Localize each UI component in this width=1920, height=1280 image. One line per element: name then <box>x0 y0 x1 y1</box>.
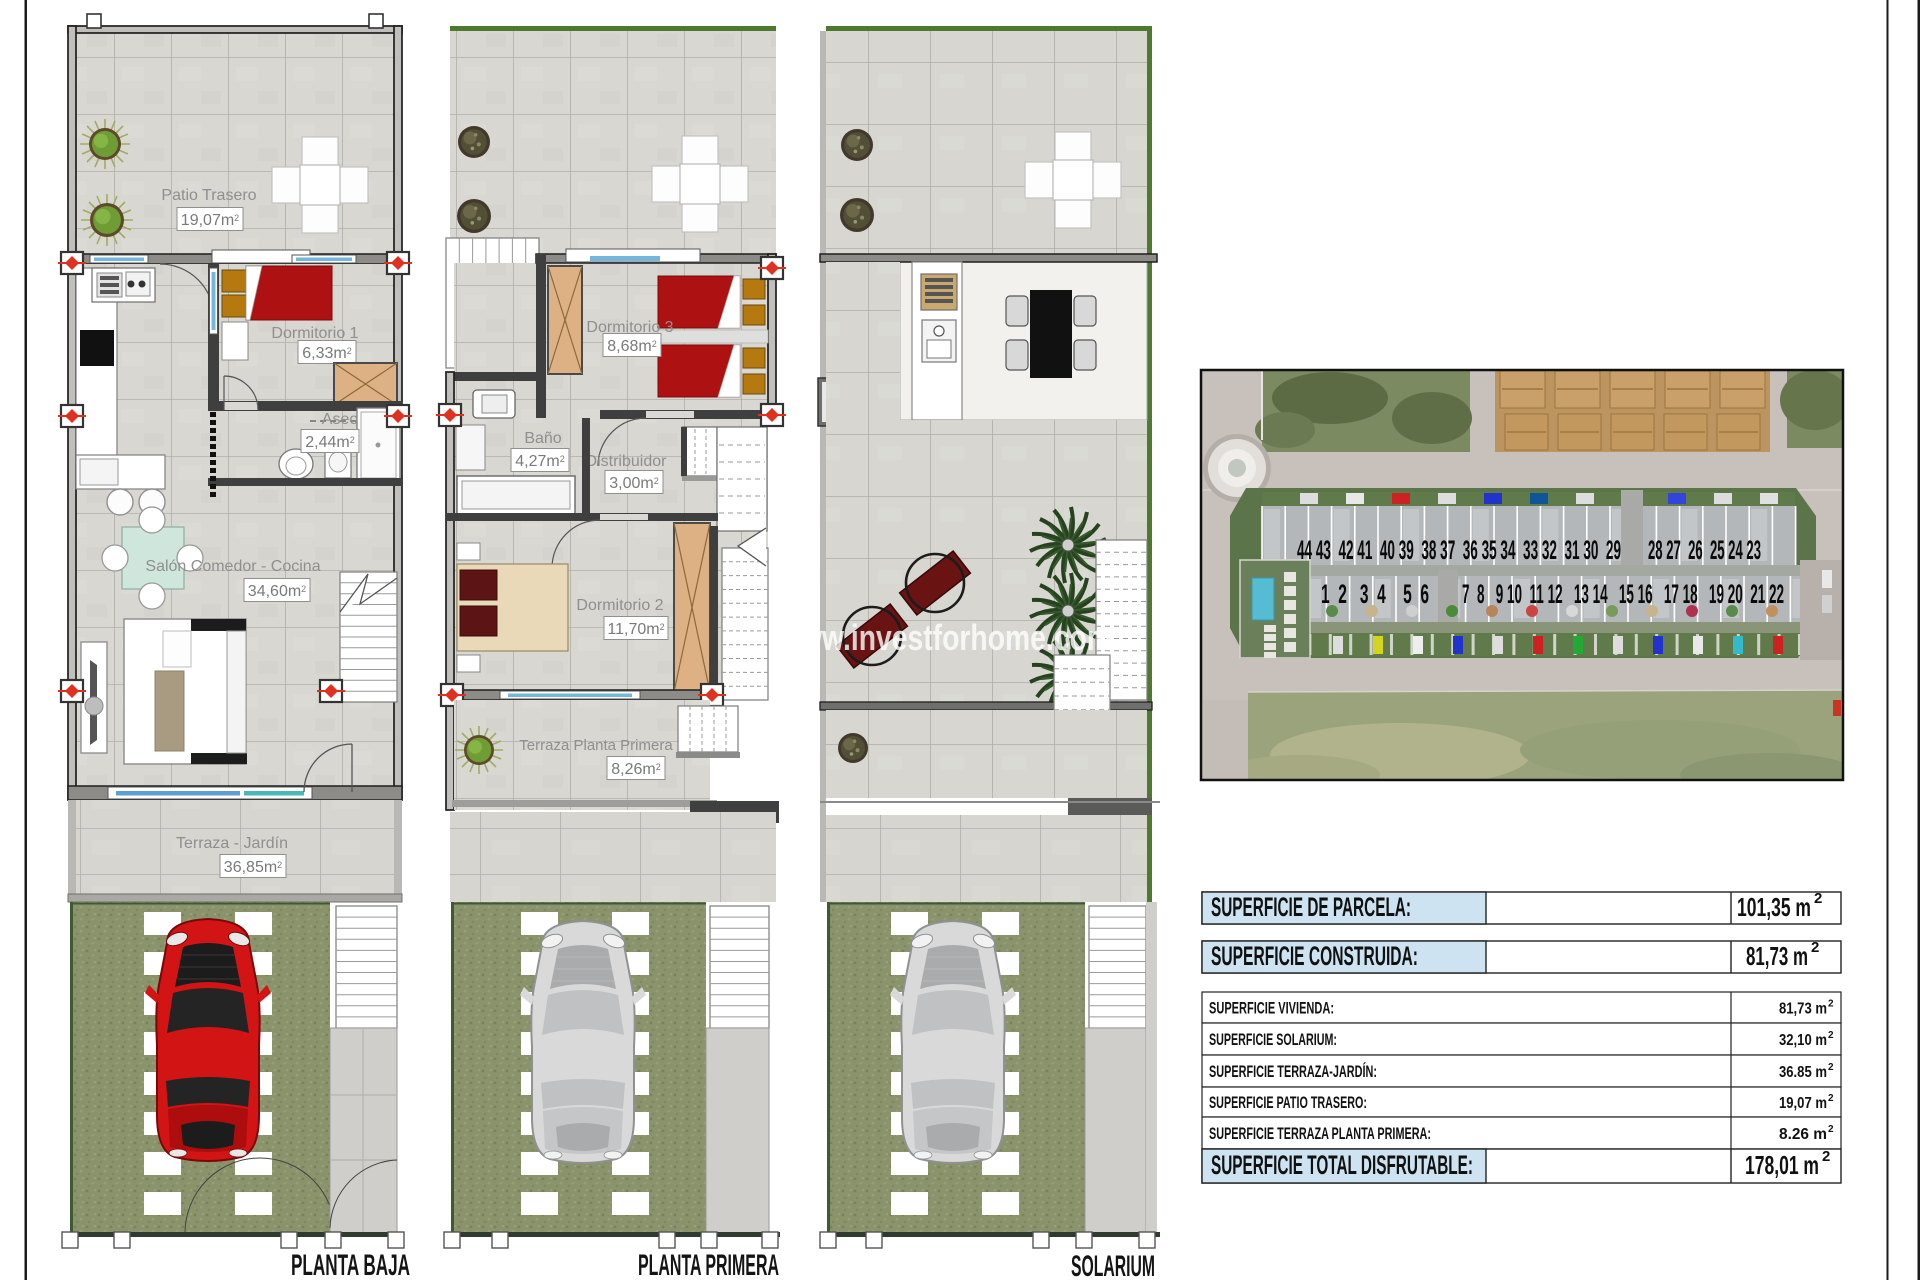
svg-text:SUPERFICIE DE PARCELA:: SUPERFICIE DE PARCELA: <box>1211 892 1411 922</box>
svg-text:8,26m2: 8,26m2 <box>611 761 660 778</box>
svg-text:7 8 9 10 11 12 13 14 1: 7 8 9 10 11 12 13 14 15 16 17 18 19 20 2… <box>1462 579 1784 609</box>
svg-text:SUPERFICIE PATIO TRASERO:: SUPERFICIE PATIO TRASERO: <box>1209 1093 1367 1112</box>
svg-text:19,07 m: 19,07 m <box>1779 1095 1827 1112</box>
svg-text:11,70m2: 11,70m2 <box>607 621 664 638</box>
svg-text:81,73 m: 81,73 m <box>1779 1001 1827 1018</box>
svg-text:178,01 m: 178,01 m <box>1745 1150 1819 1180</box>
svg-text:8.26 m: 8.26 m <box>1779 1126 1827 1143</box>
svg-text:2: 2 <box>1814 890 1822 907</box>
svg-text:Patio Trasero: Patio Trasero <box>161 187 256 204</box>
svg-text:Terraza - Jardín: Terraza - Jardín <box>176 835 288 852</box>
svg-text:2: 2 <box>1828 1124 1834 1135</box>
svg-text:Salón Comedor - Cocina: Salón Comedor - Cocina <box>145 558 320 575</box>
svg-text:19,07m2: 19,07m2 <box>181 212 239 229</box>
svg-text:2: 2 <box>1828 1030 1834 1041</box>
svg-text:2,44m2: 2,44m2 <box>305 434 354 451</box>
svg-text:Dormitorio 1: Dormitorio 1 <box>271 325 358 342</box>
svg-text:4,27m2: 4,27m2 <box>515 453 564 470</box>
svg-text:81,73 m: 81,73 m <box>1746 941 1808 971</box>
svg-text:2: 2 <box>1828 999 1834 1010</box>
svg-text:2: 2 <box>1828 1093 1834 1104</box>
svg-text:2: 2 <box>1828 1062 1834 1073</box>
svg-text:36.85 m: 36.85 m <box>1779 1064 1827 1081</box>
svg-text:2: 2 <box>1811 939 1819 956</box>
svg-text:2: 2 <box>1822 1148 1830 1165</box>
svg-text:36,85m2: 36,85m2 <box>224 859 282 876</box>
svg-text:PLANTA PRIMERA: PLANTA PRIMERA <box>638 1249 779 1280</box>
svg-text:1 2 3 4 5 6: 1 2 3 4 5 6 <box>1321 579 1429 609</box>
svg-text:34,60m2: 34,60m2 <box>248 583 306 600</box>
svg-text:SOLARIUM: SOLARIUM <box>1071 1250 1155 1280</box>
svg-text:SUPERFICIE TERRAZA-JARDÍN:: SUPERFICIE TERRAZA-JARDÍN: <box>1209 1062 1377 1081</box>
svg-text:Baño: Baño <box>524 430 561 447</box>
svg-text:44 43 42 41 40 39 38 37 36: 44 43 42 41 40 39 38 37 36 35 34 33 32 3… <box>1297 535 1621 565</box>
svg-text:PLANTA BAJA: PLANTA BAJA <box>291 1249 410 1280</box>
svg-text:SUPERFICIE TOTAL DISFRUTABLE:: SUPERFICIE TOTAL DISFRUTABLE: <box>1211 1150 1473 1180</box>
svg-text:SUPERFICIE SOLARIUM:: SUPERFICIE SOLARIUM: <box>1209 1030 1337 1049</box>
svg-text:28 27 26 25 24 23: 28 27 26 25 24 23 <box>1648 535 1761 565</box>
svg-text:6,33m2: 6,33m2 <box>302 345 351 362</box>
svg-text:SUPERFICIE TERRAZA PLANTA PRIM: SUPERFICIE TERRAZA PLANTA PRIMERA: <box>1209 1124 1431 1143</box>
svg-text:8,68m2: 8,68m2 <box>607 338 656 355</box>
svg-text:SUPERFICIE VIVIENDA:: SUPERFICIE VIVIENDA: <box>1209 999 1334 1018</box>
svg-text:32,10 m: 32,10 m <box>1779 1032 1827 1049</box>
svg-text:3,00m2: 3,00m2 <box>609 475 658 492</box>
svg-text:Dormitorio 2: Dormitorio 2 <box>576 597 663 614</box>
svg-text:101,35 m: 101,35 m <box>1737 892 1811 922</box>
svg-text:Aseo: Aseo <box>322 411 359 428</box>
svg-text:Distribuidor: Distribuidor <box>586 453 668 470</box>
svg-text:www.investforhome.com: www.investforhome.com <box>777 617 1112 658</box>
svg-text:Terraza Planta Primera: Terraza Planta Primera <box>519 737 673 754</box>
svg-text:SUPERFICIE CONSTRUIDA:: SUPERFICIE CONSTRUIDA: <box>1211 941 1418 971</box>
